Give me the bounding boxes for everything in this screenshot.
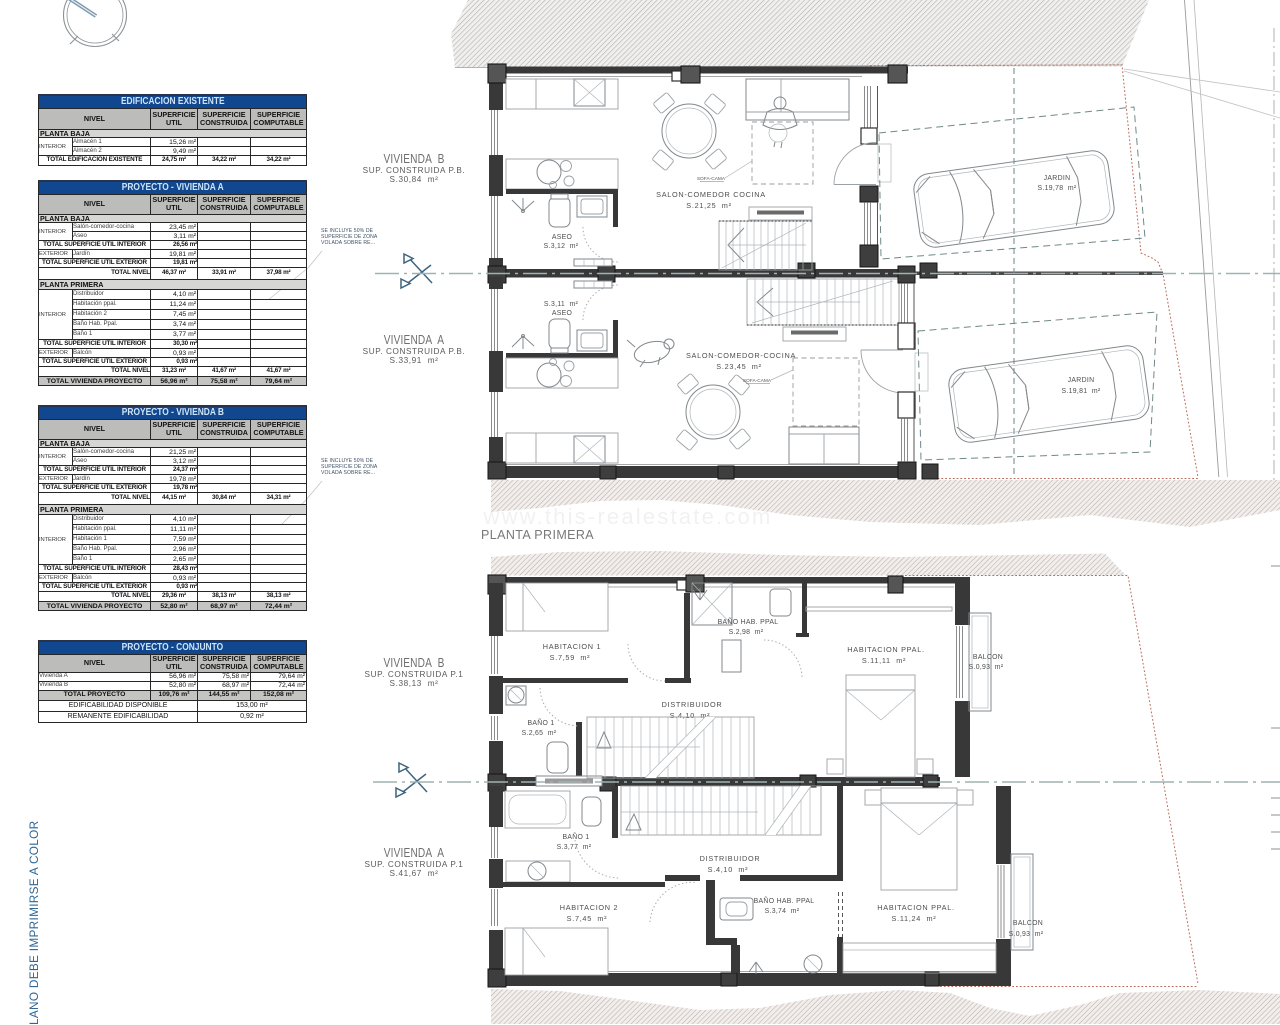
svg-text:S.4,10 m²: S.4,10 m² <box>708 865 749 874</box>
svg-text:HABITACION 2: HABITACION 2 <box>560 903 619 912</box>
svg-text:S.21,25 m²: S.21,25 m² <box>686 201 731 210</box>
svg-text:S.0,93 m²: S.0,93 m² <box>969 664 1004 671</box>
svg-text:S.2,65 m²: S.2,65 m² <box>522 730 557 737</box>
svg-text:S.23,45 m²: S.23,45 m² <box>716 362 761 371</box>
svg-text:BAÑO 1: BAÑO 1 <box>527 718 554 727</box>
svg-text:SOFA-CAMA: SOFA-CAMA <box>743 378 772 384</box>
svg-text:S.7,45 m²: S.7,45 m² <box>567 914 608 923</box>
svg-text:S.11,24 m²: S.11,24 m² <box>892 914 937 923</box>
svg-text:S.7,59 m²: S.7,59 m² <box>550 653 591 662</box>
svg-text:S.3,77 m²: S.3,77 m² <box>557 844 592 851</box>
svg-text:S.3,11 m²: S.3,11 m² <box>544 301 579 308</box>
svg-text:BAÑO HAB. PPAL: BAÑO HAB. PPAL <box>754 896 815 905</box>
svg-text:S.3,12 m²: S.3,12 m² <box>544 243 579 250</box>
svg-text:S.19,78 m²: S.19,78 m² <box>1038 185 1077 192</box>
svg-text:SALON-COMEDOR COCINA: SALON-COMEDOR COCINA <box>656 190 766 199</box>
svg-text:S.11,11 m²: S.11,11 m² <box>862 656 906 665</box>
svg-text:DISTRIBUIDOR: DISTRIBUIDOR <box>700 854 761 863</box>
svg-text:S.19,81 m²: S.19,81 m² <box>1062 388 1101 395</box>
svg-text:HABITACION 1: HABITACION 1 <box>543 642 602 651</box>
svg-text:JARDIN: JARDIN <box>1044 175 1071 182</box>
svg-text:ASEO: ASEO <box>552 234 573 241</box>
svg-text:DISTRIBUIDOR: DISTRIBUIDOR <box>662 700 723 709</box>
svg-text:ASEO: ASEO <box>552 310 573 317</box>
svg-text:BALCON: BALCON <box>973 654 1003 661</box>
svg-text:SALON-COMEDOR-COCINA: SALON-COMEDOR-COCINA <box>686 351 796 360</box>
svg-text:BALCON: BALCON <box>1013 920 1043 927</box>
svg-text:S.0,93 m²: S.0,93 m² <box>1009 931 1044 938</box>
svg-text:JARDIN: JARDIN <box>1068 377 1095 384</box>
svg-text:SOFA-CAMA: SOFA-CAMA <box>697 176 726 182</box>
svg-text:www.this-realestate.com: www.this-realestate.com <box>482 504 772 529</box>
svg-text:S.3,74 m²: S.3,74 m² <box>765 908 800 915</box>
svg-text:HABITACION PPAL.: HABITACION PPAL. <box>847 645 924 654</box>
svg-text:HABITACION PPAL.: HABITACION PPAL. <box>877 903 954 912</box>
svg-text:S.2,98 m²: S.2,98 m² <box>729 629 764 636</box>
svg-text:BAÑO 1: BAÑO 1 <box>562 832 589 841</box>
svg-text:BAÑO HAB. PPAL: BAÑO HAB. PPAL <box>718 617 779 626</box>
